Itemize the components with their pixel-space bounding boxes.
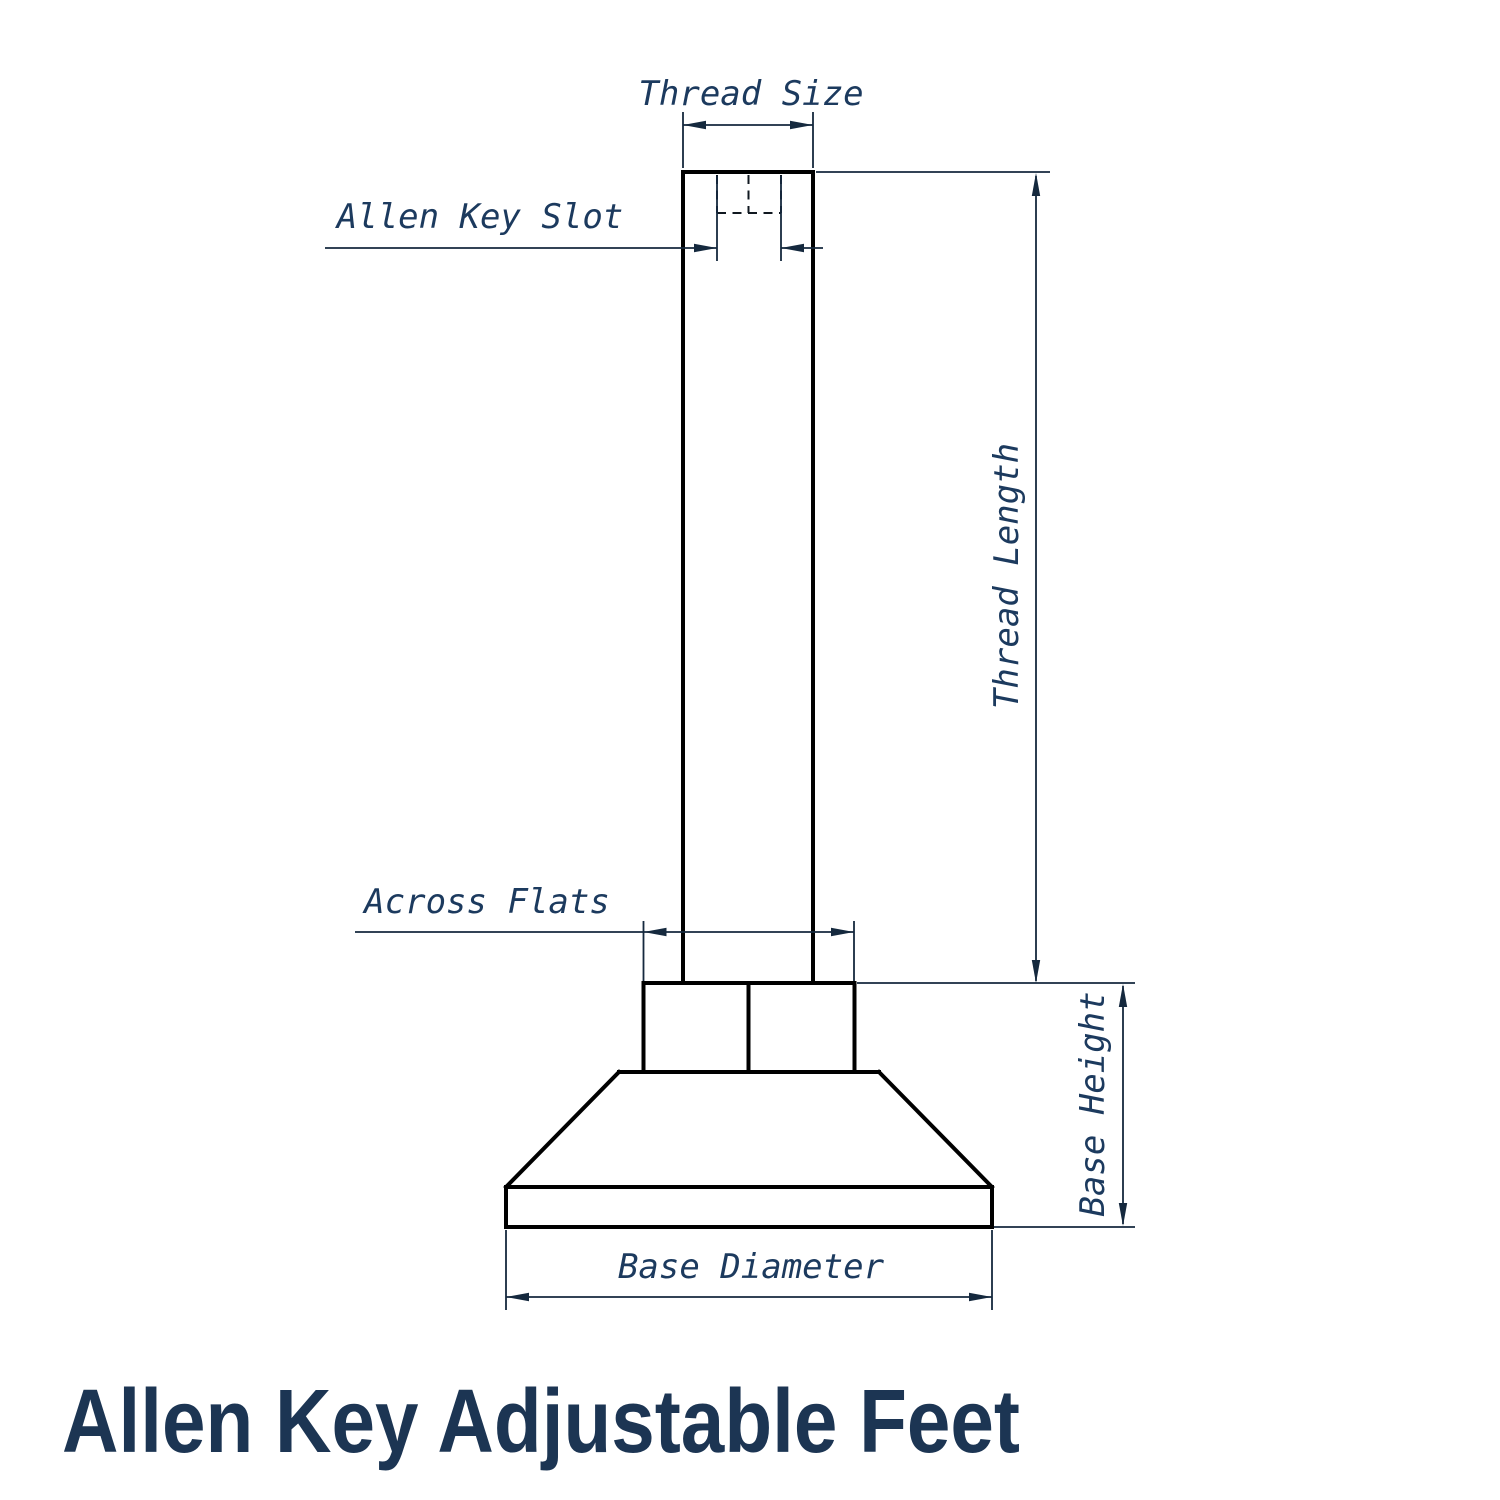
dimension-arrows <box>506 121 1127 1301</box>
base-height-arrow-down-icon <box>1119 1203 1127 1226</box>
allen-slot-arrow-left-icon <box>781 244 804 252</box>
hex-section-outline <box>644 983 855 1072</box>
part-outline <box>506 172 992 1227</box>
base-outline <box>506 1072 992 1227</box>
page-title: Allen Key Adjustable Feet <box>62 1372 1020 1472</box>
thread-stud-outline <box>683 172 813 983</box>
thread-size-arrow-left-icon <box>683 121 706 129</box>
base-diameter-arrow-left-icon <box>506 1293 529 1301</box>
thread-size-label: Thread Size <box>638 74 863 114</box>
across-flats-arrow-right-icon <box>831 928 854 936</box>
thread-size-arrow-right-icon <box>790 121 813 129</box>
technical-drawing: Thread Size Allen Key Slot Thread Length… <box>0 0 1500 1500</box>
base-diameter-arrow-right-icon <box>969 1293 992 1301</box>
base-height-label: Base Height <box>1073 991 1113 1216</box>
dimension-labels: Thread Size Allen Key Slot Thread Length… <box>335 74 1113 1287</box>
dimension-lines <box>325 112 1135 1310</box>
thread-size-dim-lines <box>683 112 813 168</box>
allen-socket-hidden-path <box>717 175 781 213</box>
drawing-canvas: Thread Size Allen Key Slot Thread Length… <box>0 0 1500 1500</box>
allen-slot-arrow-right-icon <box>694 244 717 252</box>
base-diameter-label: Base Diameter <box>618 1247 885 1287</box>
base-height-arrow-up-icon <box>1119 984 1127 1007</box>
thread-length-label: Thread Length <box>987 443 1027 709</box>
across-flats-dim-lines <box>355 921 854 981</box>
thread-length-arrow-up-icon <box>1032 173 1040 196</box>
across-flats-label: Across Flats <box>362 882 610 922</box>
thread-length-arrow-down-icon <box>1032 960 1040 983</box>
allen-key-slot-label: Allen Key Slot <box>335 197 624 237</box>
across-flats-arrow-left-icon <box>644 928 667 936</box>
allen-socket-hidden-lines <box>717 175 781 213</box>
